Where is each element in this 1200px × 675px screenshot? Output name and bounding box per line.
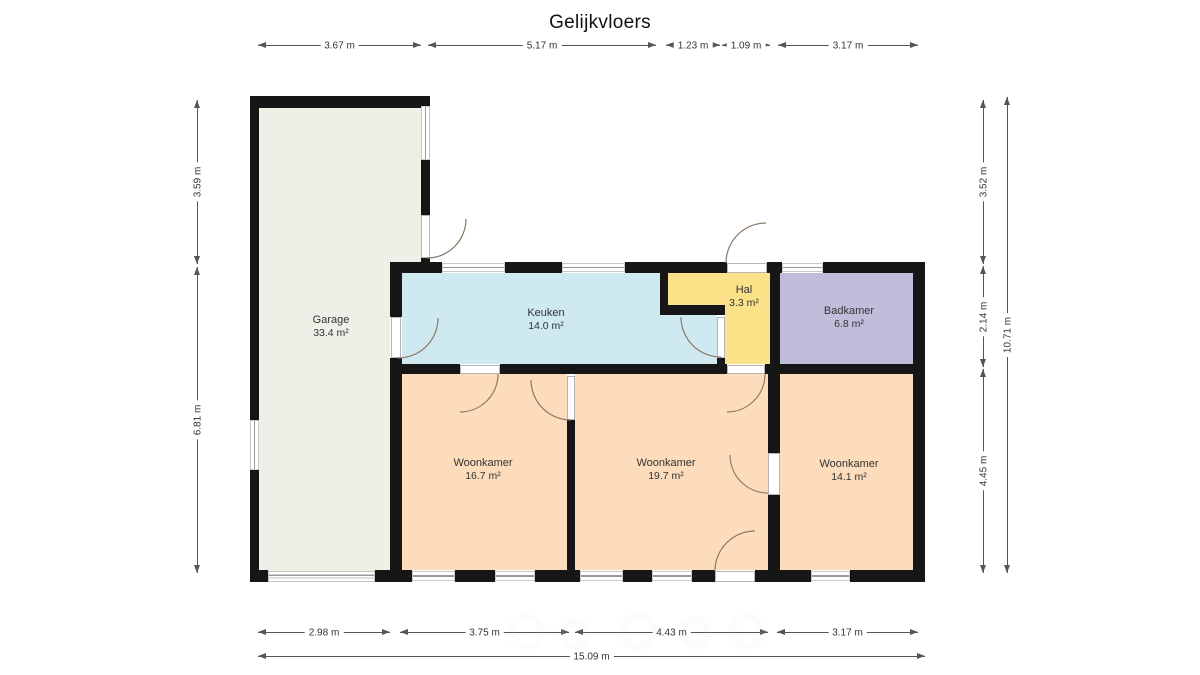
- dim-right-middle: 2.14 m: [983, 266, 984, 367]
- room-area: 16.7 m²: [423, 470, 543, 484]
- arrow-up: [194, 267, 200, 275]
- arrow-right: [910, 42, 918, 48]
- dim-value: 3.52 m: [979, 163, 990, 202]
- arrow-right: [382, 629, 390, 635]
- dim-top-hal-b: 1.09 m: [722, 45, 770, 46]
- floorplan-gelijkvloers: Gelijkvloers: [0, 0, 1200, 675]
- arrow-down: [980, 256, 986, 264]
- arc-garage-keuken: [398, 318, 438, 358]
- dim-value: 5.17 m: [523, 41, 562, 52]
- arrow-right: [561, 629, 569, 635]
- arrow-down: [980, 359, 986, 367]
- dim-value: 3.75 m: [465, 628, 504, 639]
- dim-value: 2.14 m: [979, 297, 990, 336]
- door-swing-arcs: [0, 0, 1200, 675]
- dim-top-garage: 3.67 m: [258, 45, 421, 46]
- dim-value: 15.09 m: [569, 652, 613, 663]
- dim-value: 3.17 m: [828, 628, 867, 639]
- label-woonkamer-1: Woonkamer 16.7 m²: [423, 456, 543, 484]
- arrow-down: [194, 565, 200, 573]
- arrow-up: [980, 369, 986, 377]
- dim-value: 4.45 m: [979, 452, 990, 491]
- arc-keuken-woonkamer1: [460, 374, 498, 412]
- arrow-down: [194, 256, 200, 264]
- arc-garage-exterior: [427, 219, 466, 258]
- dim-value: 1.23 m: [674, 41, 713, 52]
- dim-right-lower: 4.45 m: [983, 369, 984, 573]
- dim-value: 3.67 m: [320, 41, 359, 52]
- room-area: 19.7 m²: [606, 470, 726, 484]
- label-woonkamer-2: Woonkamer 19.7 m²: [606, 456, 726, 484]
- arc-woonkamer1-2: [531, 380, 571, 420]
- dim-value: 2.98 m: [305, 628, 344, 639]
- arrow-left: [428, 42, 436, 48]
- dim-left-lower: 6.81 m: [197, 267, 198, 573]
- room-area: 33.4 m²: [271, 327, 391, 341]
- room-name: Badkamer: [789, 304, 909, 318]
- dim-bottom-woonkamer1: 3.75 m: [400, 632, 569, 633]
- dim-bottom-garage: 2.98 m: [258, 632, 390, 633]
- room-area: 6.8 m²: [789, 318, 909, 332]
- arrow-right: [760, 629, 768, 635]
- arrow-right: [910, 629, 918, 635]
- arrow-left: [575, 629, 583, 635]
- room-area: 14.1 m²: [789, 471, 909, 485]
- room-area: 3.3 m²: [684, 297, 804, 311]
- dim-top-badkamer: 3.17 m: [778, 45, 918, 46]
- dim-top-keuken: 5.17 m: [428, 45, 656, 46]
- dim-right-upper: 3.52 m: [983, 100, 984, 264]
- label-woonkamer-3: Woonkamer 14.1 m²: [789, 457, 909, 485]
- dim-value: 3.17 m: [829, 41, 868, 52]
- dim-value: 1.09 m: [727, 41, 766, 52]
- arrow-left: [258, 42, 266, 48]
- arrow-up: [980, 100, 986, 108]
- arrow-left: [400, 629, 408, 635]
- arrow-left: [778, 42, 786, 48]
- room-name: Woonkamer: [606, 456, 726, 470]
- room-name: Woonkamer: [789, 457, 909, 471]
- arc-woonkamer2-3: [730, 455, 768, 493]
- dim-value: 4.43 m: [652, 628, 691, 639]
- arrow-left: [777, 629, 785, 635]
- label-badkamer: Badkamer 6.8 m²: [789, 304, 909, 332]
- arrow-right: [917, 653, 925, 659]
- room-name: Woonkamer: [423, 456, 543, 470]
- arrow-left: [258, 653, 266, 659]
- label-garage: Garage 33.4 m²: [271, 313, 391, 341]
- arrow-up: [194, 100, 200, 108]
- dim-left-upper: 3.59 m: [197, 100, 198, 264]
- dim-value: 10.71 m: [1003, 313, 1014, 357]
- label-keuken: Keuken 14.0 m²: [486, 306, 606, 334]
- dim-bottom-woonkamer3: 3.17 m: [777, 632, 918, 633]
- arc-woonkamer2-exterior: [715, 531, 755, 571]
- dim-right-total: 10.71 m: [1007, 97, 1008, 573]
- arrow-up: [1004, 97, 1010, 105]
- arrow-right: [712, 42, 720, 48]
- arc-keukenext-hal: [681, 317, 721, 357]
- arrow-up: [980, 266, 986, 274]
- arrow-right: [413, 42, 421, 48]
- arrow-down: [980, 565, 986, 573]
- arc-hal-woonkamer2: [727, 374, 765, 412]
- room-name: Keuken: [486, 306, 606, 320]
- arrow-left: [258, 629, 266, 635]
- dim-bottom-woonkamer2: 4.43 m: [575, 632, 768, 633]
- room-name: Hal: [684, 283, 804, 297]
- dim-bottom-total: 15.09 m: [258, 656, 925, 657]
- room-name: Garage: [271, 313, 391, 327]
- arc-hal-entrance: [726, 223, 766, 263]
- dim-value: 6.81 m: [193, 401, 204, 440]
- dim-top-hal-a: 1.23 m: [666, 45, 720, 46]
- label-hal: Hal 3.3 m²: [684, 283, 804, 311]
- dim-value: 3.59 m: [193, 163, 204, 202]
- arrow-down: [1004, 565, 1010, 573]
- arrow-right: [648, 42, 656, 48]
- room-area: 14.0 m²: [486, 320, 606, 334]
